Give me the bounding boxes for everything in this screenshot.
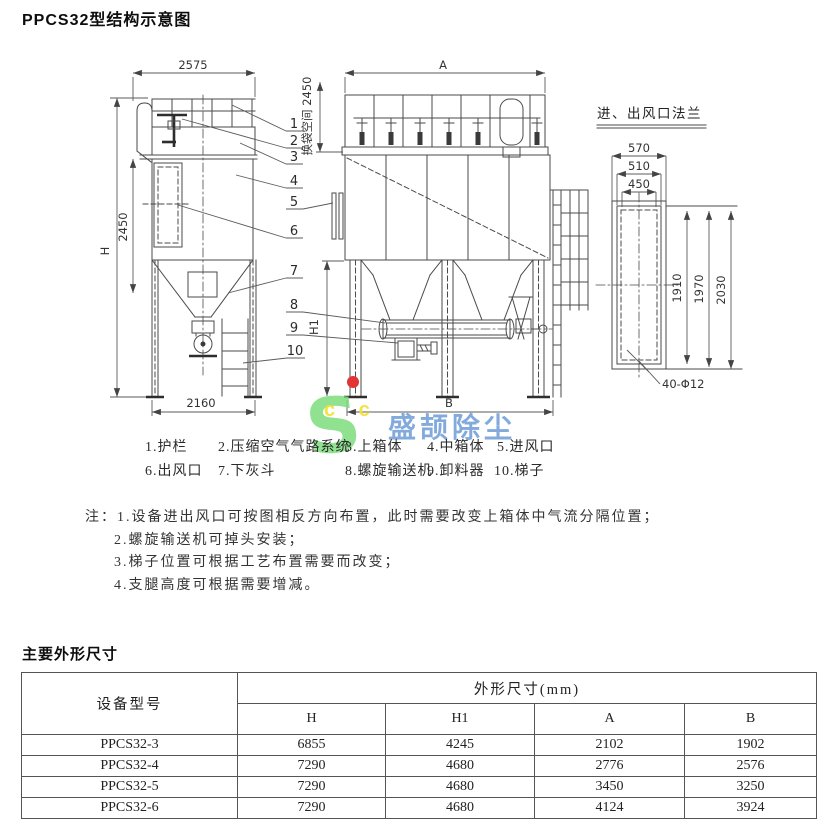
callout-5: 5 — [290, 195, 298, 210]
note-line-1: 注：1.设备进出风口可按图相反方向布置，此时需要改变上箱体中气流分隔位置； — [85, 507, 660, 530]
col-header-B: B — [685, 704, 817, 735]
page-title: PPCS32型结构示意图 — [22, 6, 191, 30]
col-header-dimensions: 外形尺寸(mm) — [238, 673, 817, 704]
note-prefix: 注： — [85, 510, 117, 525]
legend-item-5: 5.进风口 — [497, 436, 555, 456]
callout-8: 8 — [290, 298, 298, 313]
callout-2: 2 — [290, 134, 298, 149]
cell-model: PPCS32-5 — [22, 777, 238, 798]
dim-bag-space: 换袋空间 2450 — [300, 77, 314, 156]
dim-1910: 1910 — [670, 273, 684, 302]
callout-9: 9 — [290, 321, 298, 336]
legend-item-10: 10.梯子 — [494, 460, 545, 480]
flange-view: 进、出风口法兰 570 510 450 1910 1970 2030 40-Φ1… — [596, 106, 742, 391]
dim-450: 450 — [628, 177, 650, 191]
col-header-A: A — [535, 704, 685, 735]
notes: 注：1.设备进出风口可按图相反方向布置，此时需要改变上箱体中气流分隔位置； 2.… — [85, 507, 660, 597]
structure-drawing: 2575 H 2450 2160 — [0, 55, 828, 435]
table-row: PPCS32-4 7290 4680 2776 2576 — [22, 756, 817, 777]
watermark-logo-cc: c c — [324, 399, 379, 422]
callout-3: 3 — [290, 150, 298, 165]
dim-A: A — [439, 58, 447, 72]
legend-item-9: 9.卸料器 — [427, 460, 485, 480]
front-view: A 换袋空间 2450 H1 B — [300, 58, 588, 416]
note-line-4: 4.支腿高度可根据需要增减。 — [114, 575, 660, 598]
dim-2450: 2450 — [116, 212, 130, 241]
legend-item-4: 4.中箱体 — [427, 436, 485, 456]
dim-H1: H1 — [307, 319, 321, 335]
dim-H: H — [98, 247, 112, 256]
side-view: 2575 H 2450 2160 — [98, 58, 262, 416]
dim-1970: 1970 — [692, 274, 706, 303]
legend-item-1: 1.护栏 — [145, 436, 188, 456]
air-tank — [500, 99, 523, 145]
dim-510: 510 — [628, 159, 650, 173]
cell-model: PPCS32-6 — [22, 798, 238, 819]
caged-ladder — [550, 190, 588, 397]
table-row: PPCS32-5 7290 4680 3450 3250 — [22, 777, 817, 798]
legend-item-8: 8.螺旋输送机 — [345, 460, 433, 480]
legend-item-2: 2.压缩空气气路系统 — [218, 436, 351, 456]
callout-1: 1 — [290, 117, 298, 132]
callout-6: 6 — [290, 224, 298, 239]
callouts: 1 2 3 4 5 6 7 8 9 10 — [178, 105, 398, 363]
cell-model: PPCS32-4 — [22, 756, 238, 777]
col-header-model: 设备型号 — [22, 673, 238, 735]
dimensions-table: 设备型号 外形尺寸(mm) H H1 A B PPCS32-3 6855 424… — [21, 672, 817, 819]
table-row: PPCS32-3 6855 4245 2102 1902 — [22, 735, 817, 756]
note-line-2: 2.螺旋输送机可掉头安装； — [114, 530, 660, 553]
dim-570: 570 — [628, 141, 650, 155]
callout-7: 7 — [290, 264, 298, 279]
pulse-valves — [357, 118, 542, 145]
inlet-flange — [332, 193, 336, 239]
col-header-H1: H1 — [386, 704, 535, 735]
cell-model: PPCS32-3 — [22, 735, 238, 756]
legend-item-7: 7.下灰斗 — [218, 460, 276, 480]
section-title: 主要外形尺寸 — [22, 643, 118, 664]
dim-2575: 2575 — [178, 58, 207, 72]
dim-2160: 2160 — [186, 396, 215, 410]
table-row: PPCS32-6 7290 4680 4124 3924 — [22, 798, 817, 819]
legend-item-6: 6.出风口 — [145, 460, 203, 480]
col-header-H: H — [238, 704, 386, 735]
dim-2030: 2030 — [714, 275, 728, 304]
note-line-3: 3.梯子位置可根据工艺布置需要而改变； — [114, 552, 660, 575]
callout-4: 4 — [290, 174, 298, 189]
flange-view-title: 进、出风口法兰 — [597, 106, 702, 122]
watermark-red-dot — [347, 376, 359, 388]
bolt-spec: 40-Φ12 — [662, 377, 704, 391]
callout-10: 10 — [287, 344, 304, 359]
legend-item-3: 3.上箱体 — [345, 436, 403, 456]
